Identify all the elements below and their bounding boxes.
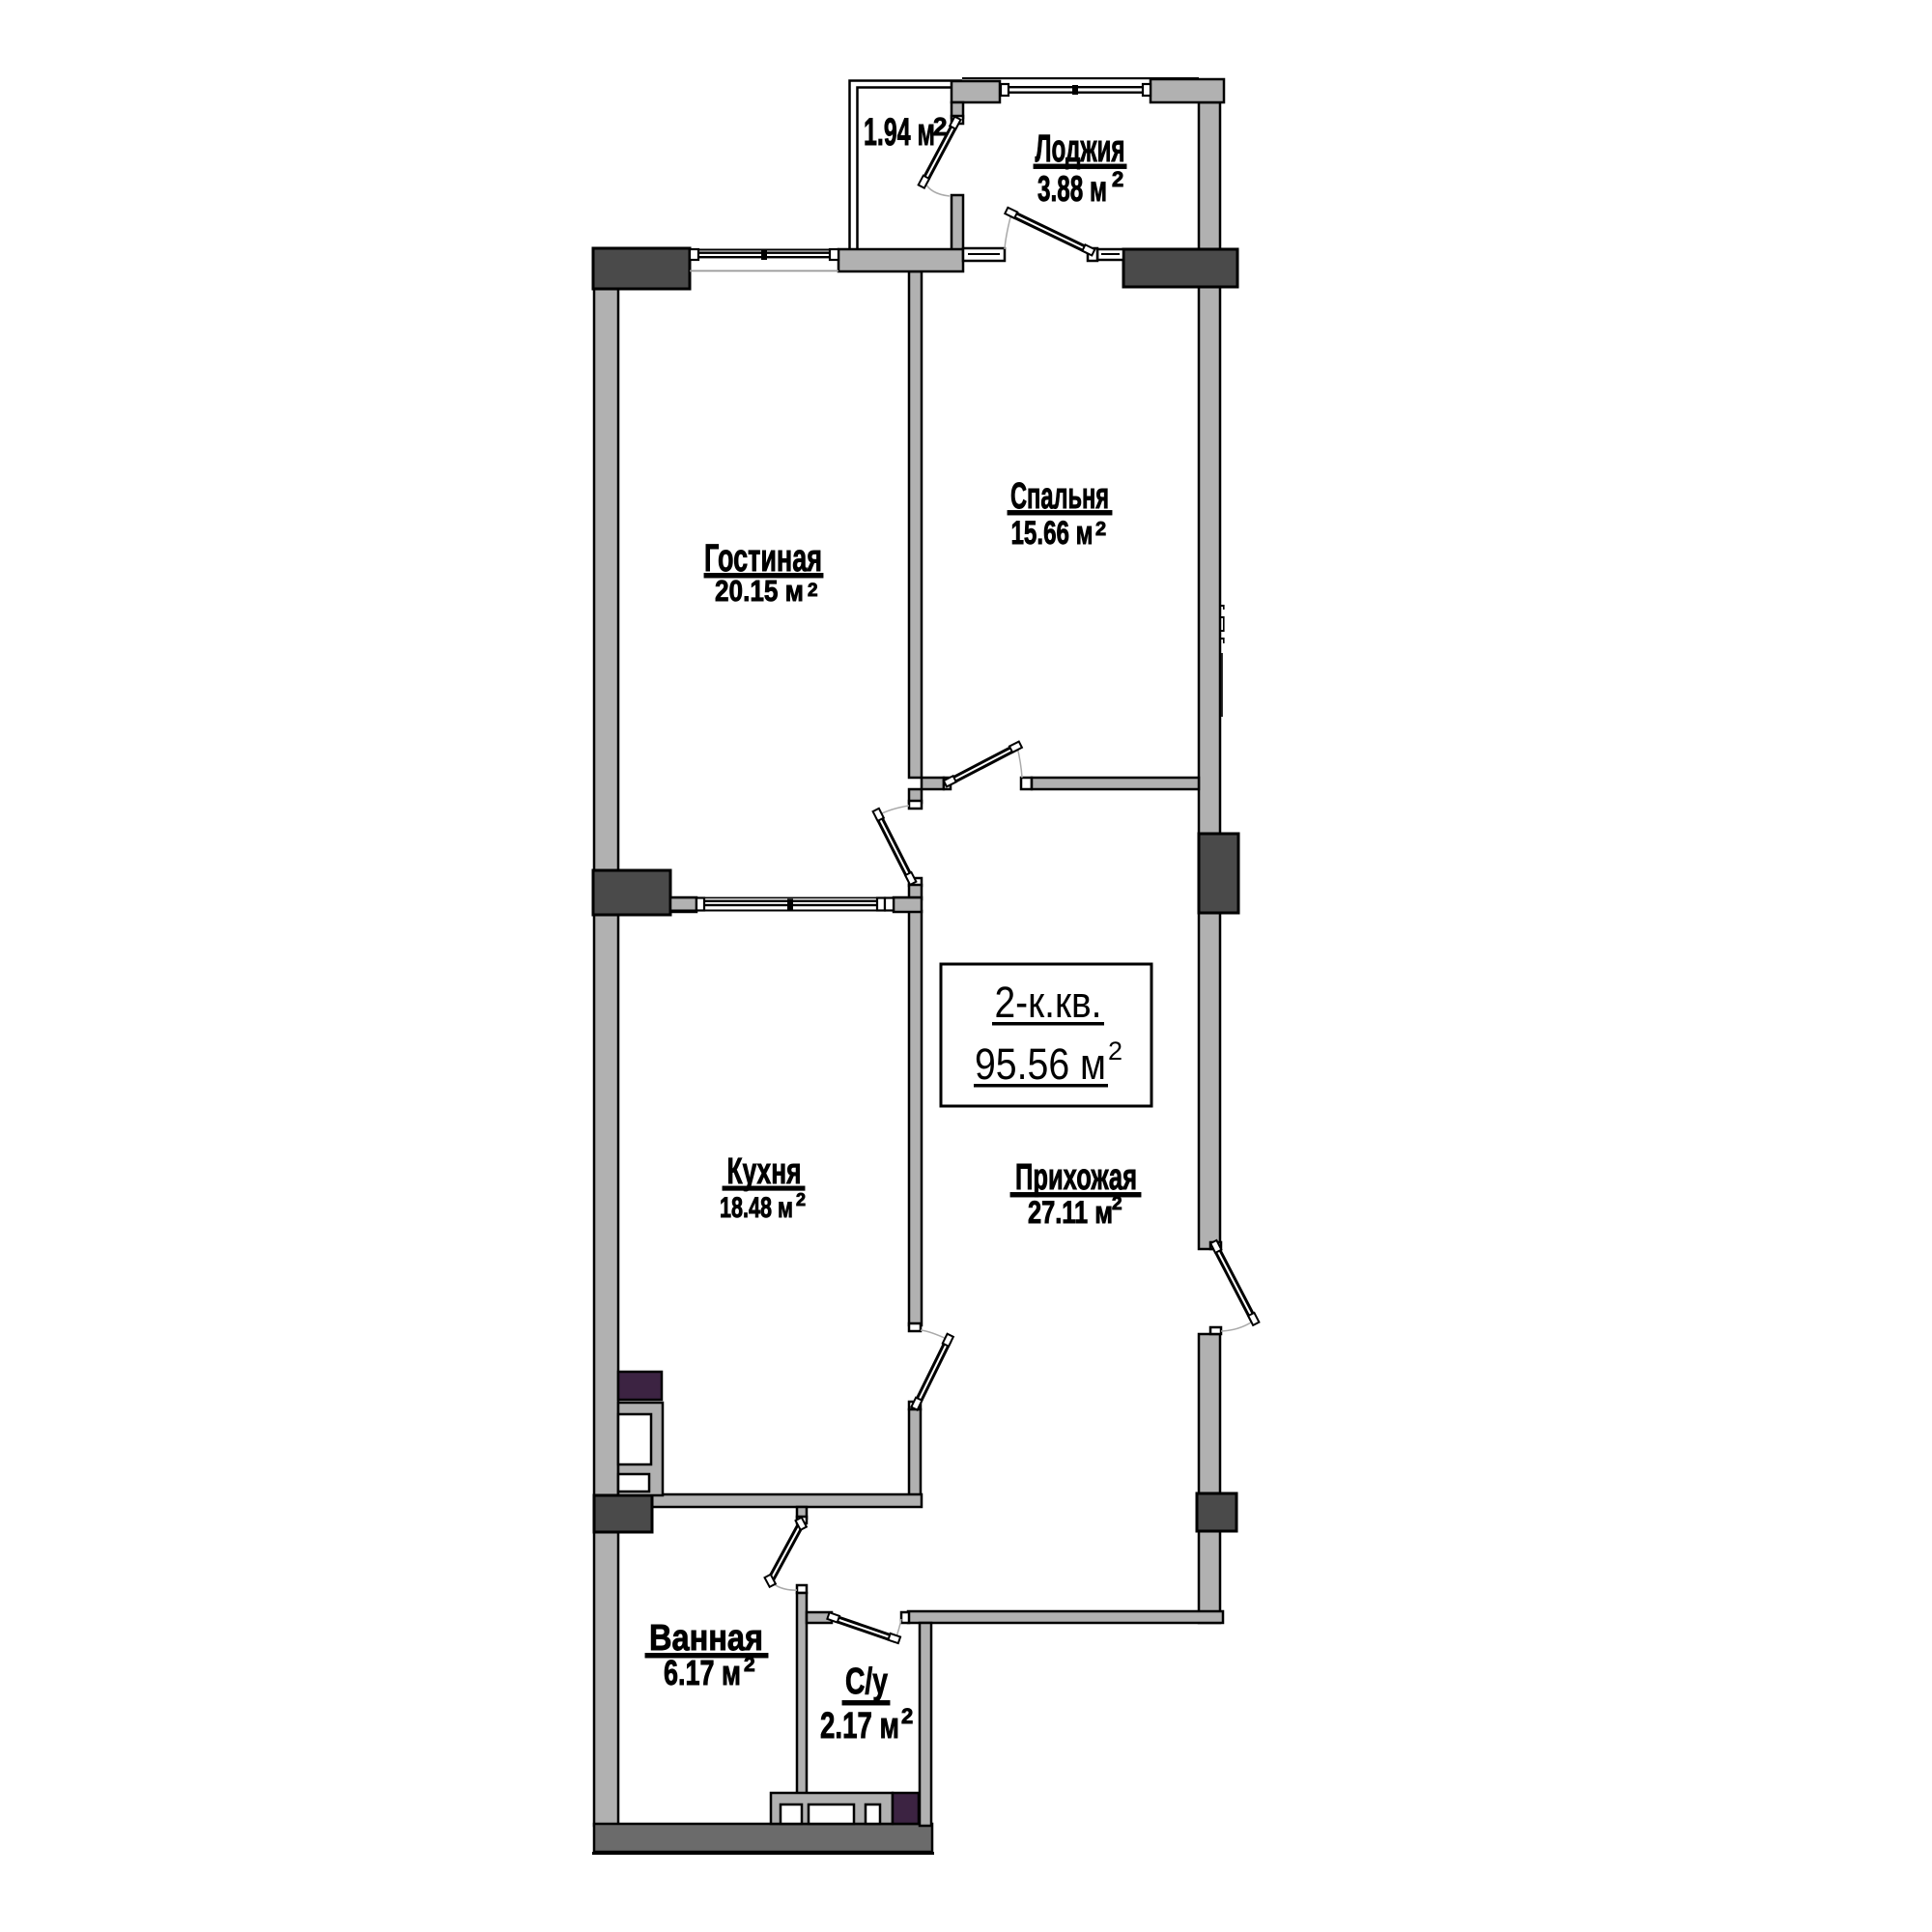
svg-text:6.17 м: 6.17 м <box>664 1653 741 1692</box>
svg-text:1.94 м: 1.94 м <box>864 111 935 154</box>
svg-text:2: 2 <box>1095 519 1106 540</box>
svg-text:С/у: С/у <box>845 1662 888 1702</box>
svg-text:2: 2 <box>1108 1037 1122 1065</box>
svg-text:2: 2 <box>744 1654 755 1676</box>
svg-text:2: 2 <box>808 581 818 601</box>
svg-text:18.48 м: 18.48 м <box>720 1192 793 1224</box>
svg-text:27.11 м: 27.11 м <box>1028 1195 1113 1230</box>
svg-text:2: 2 <box>933 112 947 141</box>
svg-text:2: 2 <box>1112 167 1123 191</box>
svg-text:2: 2 <box>901 1704 913 1728</box>
svg-text:20.15 м: 20.15 м <box>715 574 804 608</box>
svg-text:3.88 м: 3.88 м <box>1037 169 1107 209</box>
svg-text:Прихожая: Прихожая <box>1015 1157 1137 1198</box>
svg-text:2: 2 <box>796 1190 806 1209</box>
svg-text:95.56 м: 95.56 м <box>975 1039 1106 1089</box>
svg-text:15.66 м: 15.66 м <box>1011 515 1094 552</box>
svg-text:Лоджия: Лоджия <box>1036 128 1125 170</box>
svg-text:2.17 м: 2.17 м <box>820 1706 899 1747</box>
svg-text:2: 2 <box>1112 1194 1122 1214</box>
svg-text:2-к.кв.: 2-к.кв. <box>995 978 1102 1027</box>
